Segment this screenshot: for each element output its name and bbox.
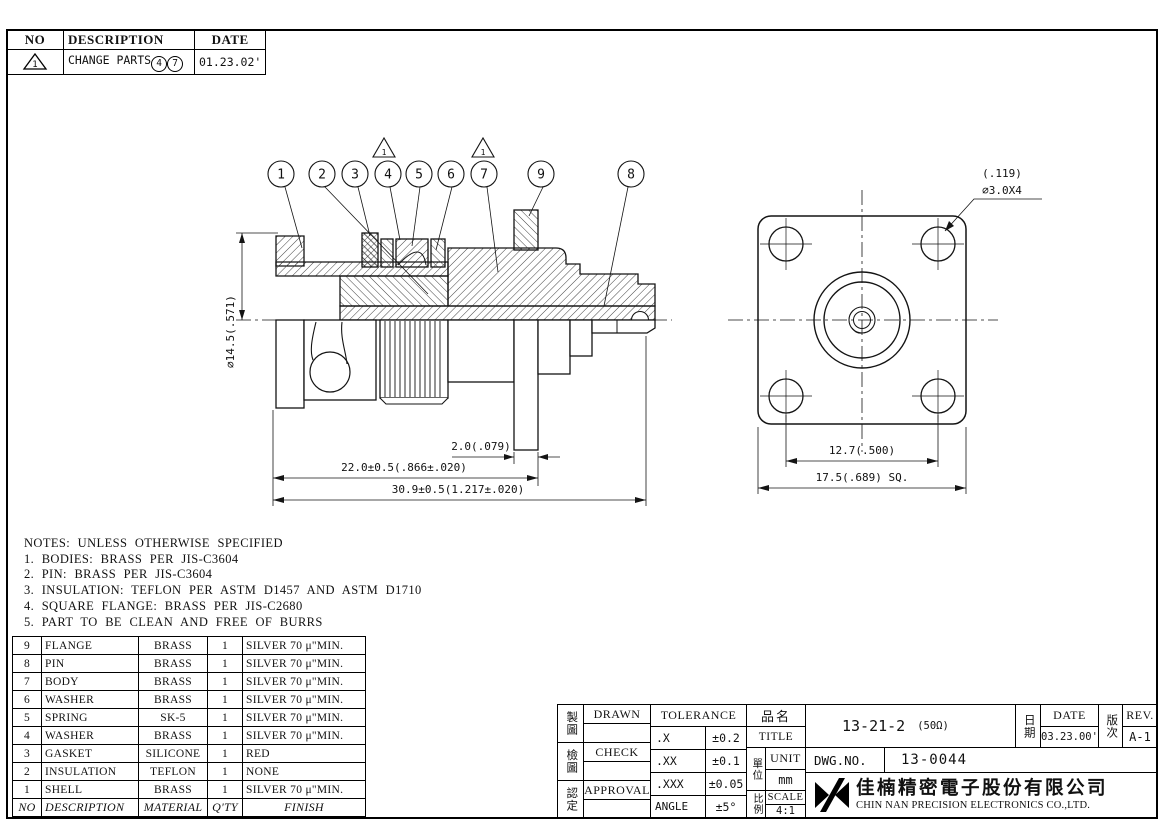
bom-qty: 1 [208, 673, 243, 691]
rev-col-description: DESCRIPTION [64, 31, 195, 50]
dwg-no-value: 13-0044 [884, 747, 1158, 773]
dim-hole-note-inch: (.119) [982, 167, 1022, 180]
bom-row: 8 PIN BRASS 1 SILVER 70 μ"MIN. [13, 655, 366, 673]
balloon-3: 3 [351, 168, 359, 183]
tol-label-xx: .XX [650, 749, 706, 773]
rev-label: REV. [1122, 704, 1158, 727]
company-name-en: CHIN NAN PRECISION ELECTRONICS CO.,LTD. [856, 800, 1108, 811]
bom-row: 6 WASHER BRASS 1 SILVER 70 μ"MIN. [13, 691, 366, 709]
insulation-section [340, 276, 448, 306]
dim-hole-note: ∅3.0X4 [982, 184, 1022, 197]
note-2: 2. PIN: BRASS PER JIS-C3604 [24, 567, 422, 583]
approval-zh: 認定 [565, 787, 577, 812]
dimension-texts-front: (.119) ∅3.0X4 12.7(.500) 17.5(.689) SQ. [816, 167, 1023, 484]
bill-of-materials: 9 FLANGE BRASS 1 SILVER 70 μ"MIN. 8 PIN … [12, 636, 366, 817]
rev-triangle-1: 1 [382, 148, 387, 157]
bom-no: 3 [13, 745, 42, 763]
scale-label: SCALE [765, 790, 806, 805]
bom-finish: SILVER 70 μ"MIN. [243, 709, 366, 727]
revision-description-cell: CHANGE PARTS47 [64, 50, 195, 75]
title-block: 製圖 DRAWN 檢圖 CHECK 認定 APPROVAL TOLERANCE … [557, 704, 1158, 818]
balloon-5: 5 [415, 168, 423, 183]
bom-qty: 1 [208, 691, 243, 709]
approval-zh-cell: 認定 [557, 780, 584, 818]
rev-zh-cell: 版次 [1098, 704, 1123, 748]
step2-lower [570, 320, 592, 356]
bom-description: GASKET [42, 745, 139, 763]
bom-row: 7 BODY BRASS 1 SILVER 70 μ"MIN. [13, 673, 366, 691]
unit-zh: 單位 [751, 758, 762, 781]
flange-section [514, 210, 538, 250]
note-3: 3. INSULATION: TEFLON PER ASTM D1457 AND… [24, 583, 422, 599]
check-signature-cell [583, 761, 651, 781]
bom-description: SPRING [42, 709, 139, 727]
revision-triangle-labels: 1 1 [382, 148, 486, 157]
date-zh-cell: 日期 [1015, 704, 1041, 748]
bom-no: 2 [13, 763, 42, 781]
balloon-7: 7 [480, 168, 488, 183]
dwg-no-label: DWG.NO. [805, 747, 885, 773]
balloon-2: 2 [318, 168, 326, 183]
dim-overall-length: 30.9±0.5(1.217±.020) [392, 483, 524, 496]
note-5: 5. PART TO BE CLEAN AND FREE OF BURRS [24, 615, 422, 631]
approval-signature-cell [583, 799, 651, 818]
bom-material: SK-5 [139, 709, 208, 727]
note-1: 1. BODIES: BRASS PER JIS-C3604 [24, 552, 422, 568]
part-name-zh: 品名 [747, 705, 805, 726]
changed-part-4: 4 [151, 56, 167, 72]
bom-material: BRASS [139, 691, 208, 709]
bom-no: 9 [13, 637, 42, 655]
bom-qty: 1 [208, 637, 243, 655]
bom-finish: SILVER 70 μ"MIN. [243, 673, 366, 691]
approval-label: APPROVAL [583, 780, 651, 800]
part-name-label-cell: 品名 TITLE [746, 704, 806, 748]
revision-header-row: NO DESCRIPTION DATE [7, 31, 266, 50]
bom-finish: SILVER 70 μ"MIN. [243, 781, 366, 799]
bom-header-description: DESCRIPTION [42, 799, 139, 817]
company-logo [812, 776, 852, 814]
drawn-signature-cell [583, 723, 651, 743]
revision-triangle-icon: 1 [22, 51, 48, 71]
date-value: 03.23.00' [1040, 726, 1099, 748]
flange-lower [514, 320, 538, 450]
knurl-taper [380, 398, 448, 404]
bom-header-no: NO [13, 799, 42, 817]
revision-mark-cell: 1 [7, 50, 64, 75]
bom-material: BRASS [139, 781, 208, 799]
unit-label: UNIT [765, 747, 806, 770]
bom-no: 1 [13, 781, 42, 799]
tol-value-xx: ±0.1 [705, 749, 747, 773]
bom-finish: SILVER 70 μ"MIN. [243, 655, 366, 673]
bom-finish: SILVER 70 μ"MIN. [243, 637, 366, 655]
check-label: CHECK [583, 742, 651, 762]
impedance: (50Ω) [917, 720, 949, 732]
bom-row: 3 GASKET SILICONE 1 RED [13, 745, 366, 763]
rev-zh: 版次 [1105, 714, 1117, 739]
tol-value-angle: ±5° [705, 795, 747, 818]
bom-no: 6 [13, 691, 42, 709]
bom-row: 5 SPRING SK-5 1 SILVER 70 μ"MIN. [13, 709, 366, 727]
cross-section-view [276, 210, 655, 450]
bom-description: FLANGE [42, 637, 139, 655]
changed-part-7: 7 [167, 56, 183, 72]
bom-description: BODY [42, 673, 139, 691]
engineering-drawing-sheet: 1 2 3 4 5 6 7 9 8 1 1 [0, 0, 1169, 826]
body-section [448, 248, 655, 306]
part-number: 13-21-2 [842, 717, 905, 735]
bom-no: 5 [13, 709, 42, 727]
scale-value: 4:1 [765, 804, 806, 818]
bom-qty: 1 [208, 655, 243, 673]
company-cell: 佳楠精密電子股份有限公司 CHIN NAN PRECISION ELECTRON… [805, 772, 1158, 818]
notes-title: NOTES: UNLESS OTHERWISE SPECIFIED [24, 536, 422, 552]
bom-qty: 1 [208, 727, 243, 745]
rev-triangle-2: 1 [481, 148, 486, 157]
bom-description: SHELL [42, 781, 139, 799]
bom-no: 8 [13, 655, 42, 673]
part-name-en: TITLE [747, 726, 805, 748]
dim-square-size: 17.5(.689) SQ. [816, 471, 909, 484]
unit-zh-cell: 單位 [746, 747, 766, 791]
check-zh-cell: 檢圖 [557, 742, 584, 781]
tol-value-xxx: ±0.05 [705, 772, 747, 796]
bom-no: 4 [13, 727, 42, 745]
bom-qty: 1 [208, 745, 243, 763]
pin-lower [592, 320, 655, 333]
bom-material: TEFLON [139, 763, 208, 781]
bom-finish: NONE [243, 763, 366, 781]
tol-label-xxx: .XXX [650, 772, 706, 796]
balloon-4: 4 [384, 168, 392, 183]
dim-flange-thickness: 2.0(.079) [451, 440, 511, 453]
step1-lower [538, 320, 570, 374]
bom-header-material: MATERIAL [139, 799, 208, 817]
washer-a-section [381, 239, 393, 267]
bom-row: 9 FLANGE BRASS 1 SILVER 70 μ"MIN. [13, 637, 366, 655]
tolerance-header: TOLERANCE [650, 704, 747, 727]
company-name-zh: 佳楠精密電子股份有限公司 [856, 779, 1108, 800]
rev-col-date: DATE [195, 31, 266, 50]
bom-material: SILICONE [139, 745, 208, 763]
balloon-1: 1 [277, 168, 285, 183]
scale-zh-cell: 比例 [746, 790, 766, 818]
bom-material: BRASS [139, 637, 208, 655]
bom-material: BRASS [139, 655, 208, 673]
bom-header-qty: Q'TY [208, 799, 243, 817]
revision-table: NO DESCRIPTION DATE 1 CHANGE PARTS47 01.… [6, 30, 266, 75]
date-label: DATE [1040, 704, 1099, 727]
bom-description: WASHER [42, 691, 139, 709]
bom-header-row: NO DESCRIPTION MATERIAL Q'TY FINISH [13, 799, 366, 817]
part-name-value-cell: 13-21-2 (50Ω) [805, 704, 1016, 748]
shell-lip-lower [276, 320, 304, 408]
dim-body-length: 22.0±0.5(.866±.020) [341, 461, 467, 474]
scale-zh: 比例 [751, 793, 761, 815]
rear-body-lower [448, 320, 514, 382]
company-names: 佳楠精密電子股份有限公司 CHIN NAN PRECISION ELECTRON… [856, 779, 1108, 811]
date-zh: 日期 [1022, 714, 1034, 739]
dim-diameter: ∅14.5(.571) [224, 295, 237, 368]
bom-finish: RED [243, 745, 366, 763]
tol-label-x: .X [650, 726, 706, 750]
bom-header-finish: FINISH [243, 799, 366, 817]
bom-qty: 1 [208, 763, 243, 781]
check-zh: 檢圖 [565, 749, 577, 774]
bom-row: 1 SHELL BRASS 1 SILVER 70 μ"MIN. [13, 781, 366, 799]
dimension-lines-front [758, 199, 1042, 494]
rev-value: A-1 [1122, 726, 1158, 748]
revision-mark: 1 [32, 60, 37, 70]
notes-block: NOTES: UNLESS OTHERWISE SPECIFIED 1. BOD… [24, 536, 422, 630]
revision-description: CHANGE PARTS [68, 53, 151, 67]
drawn-zh-cell: 製圖 [557, 704, 584, 743]
tol-label-angle: ANGLE [650, 795, 706, 818]
rev-col-no: NO [7, 31, 64, 50]
bom-no: 7 [13, 673, 42, 691]
revision-triangles [373, 138, 494, 157]
bom-finish: SILVER 70 μ"MIN. [243, 727, 366, 745]
balloon-8: 8 [627, 168, 635, 183]
bom-material: BRASS [139, 673, 208, 691]
drawn-zh: 製圖 [565, 711, 577, 736]
unit-value: mm [765, 769, 806, 791]
gasket-section [362, 233, 378, 267]
balloon-9: 9 [537, 168, 545, 183]
bom-finish: SILVER 70 μ"MIN. [243, 691, 366, 709]
balloon-6: 6 [447, 168, 455, 183]
dim-hole-spacing: 12.7(.500) [829, 444, 895, 457]
bayonet-slot-bulb [310, 352, 350, 392]
note-4: 4. SQUARE FLANGE: BRASS PER JIS-C2680 [24, 599, 422, 615]
drawn-label: DRAWN [583, 704, 651, 724]
contact-section [340, 306, 655, 320]
bom-description: INSULATION [42, 763, 139, 781]
bom-row: 2 INSULATION TEFLON 1 NONE [13, 763, 366, 781]
revision-row: 1 CHANGE PARTS47 01.23.02' [7, 50, 266, 75]
bom-description: WASHER [42, 727, 139, 745]
bom-row: 4 WASHER BRASS 1 SILVER 70 μ"MIN. [13, 727, 366, 745]
tol-value-x: ±0.2 [705, 726, 747, 750]
bom-description: PIN [42, 655, 139, 673]
bom-material: BRASS [139, 727, 208, 745]
bom-qty: 1 [208, 709, 243, 727]
bom-qty: 1 [208, 781, 243, 799]
revision-date: 01.23.02' [195, 50, 266, 75]
